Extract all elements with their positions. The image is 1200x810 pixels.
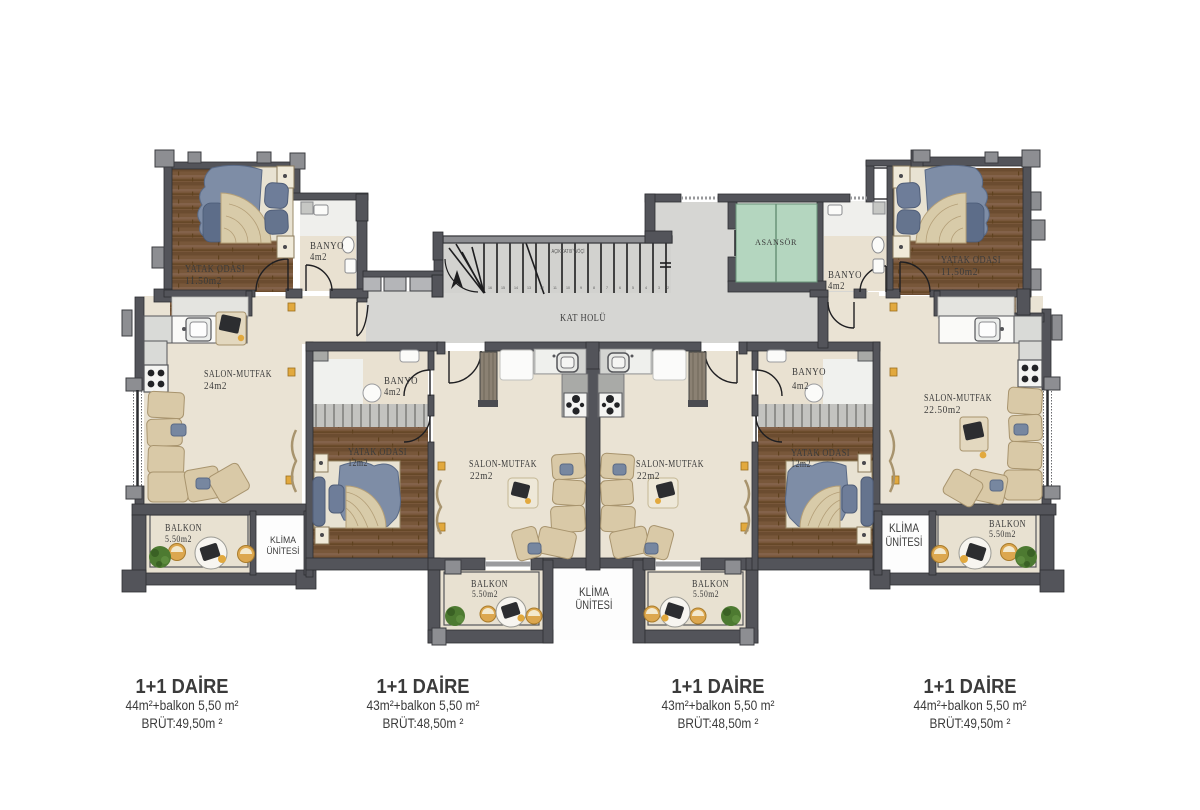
svg-text:1+1 DAİRE: 1+1 DAİRE: [377, 675, 470, 698]
svg-text:1+1 DAİRE: 1+1 DAİRE: [924, 675, 1017, 698]
svg-text:KLİMA: KLİMA: [889, 522, 919, 535]
svg-text:SALON-MUTFAK: SALON-MUTFAK: [924, 393, 992, 404]
svg-text:BANYO: BANYO: [310, 241, 344, 252]
svg-text:AÇIKÇATI9´WÖÇİ: AÇIKÇATI9´WÖÇİ: [552, 248, 585, 255]
svg-text:5.50m2: 5.50m2: [472, 590, 498, 600]
svg-text:43m²+balkon 5,50 m²: 43m²+balkon 5,50 m²: [662, 698, 775, 713]
svg-text:BALKON: BALKON: [692, 579, 729, 590]
svg-text:11.50m2: 11.50m2: [941, 267, 978, 278]
svg-text:11: 11: [553, 286, 557, 290]
svg-text:44m²+balkon 5,50 m²: 44m²+balkon 5,50 m²: [914, 698, 1027, 713]
svg-text:BRÜT:49,50m ²: BRÜT:49,50m ²: [930, 716, 1011, 731]
svg-text:BANYO: BANYO: [792, 367, 826, 378]
svg-text:4m2: 4m2: [310, 252, 327, 263]
svg-text:8: 8: [593, 286, 595, 290]
svg-text:ASANSÖR: ASANSÖR: [755, 237, 797, 247]
svg-text:12m2: 12m2: [348, 458, 368, 469]
svg-text:10: 10: [566, 286, 570, 290]
svg-text:YATAK ODASI: YATAK ODASI: [185, 264, 245, 275]
svg-text:44m²+balkon 5,50 m²: 44m²+balkon 5,50 m²: [126, 698, 239, 713]
svg-text:KLİMA: KLİMA: [270, 535, 297, 546]
svg-text:YATAK ODASI: YATAK ODASI: [791, 448, 850, 459]
svg-text:5: 5: [632, 286, 634, 290]
svg-text:22.50m2: 22.50m2: [924, 405, 961, 416]
svg-text:BRÜT:48,50m ²: BRÜT:48,50m ²: [678, 716, 759, 731]
svg-text:KLİMA: KLİMA: [579, 586, 609, 599]
svg-text:11.50m2: 11.50m2: [185, 276, 222, 287]
svg-text:YATAK ODASI: YATAK ODASI: [348, 447, 407, 458]
svg-text:BALKON: BALKON: [165, 523, 202, 534]
svg-text:BRÜT:48,50m ²: BRÜT:48,50m ²: [383, 716, 464, 731]
svg-text:4m2: 4m2: [384, 387, 401, 398]
svg-text:KAT HOLÜ: KAT HOLÜ: [560, 312, 606, 324]
svg-text:SALON-MUTFAK: SALON-MUTFAK: [636, 459, 704, 470]
svg-text:4: 4: [645, 286, 647, 290]
svg-text:YATAK ODASI: YATAK ODASI: [941, 255, 1001, 266]
svg-text:2: 2: [667, 286, 669, 290]
svg-text:4m2: 4m2: [792, 381, 809, 392]
svg-text:12: 12: [540, 286, 544, 290]
svg-text:SALON-MUTFAK: SALON-MUTFAK: [469, 459, 537, 470]
svg-text:BALKON: BALKON: [471, 579, 508, 590]
svg-text:22m2: 22m2: [637, 471, 660, 482]
svg-text:9: 9: [580, 286, 582, 290]
svg-text:BANYO: BANYO: [828, 270, 862, 281]
svg-text:5.50m2: 5.50m2: [989, 530, 1016, 540]
svg-text:3: 3: [658, 286, 660, 290]
svg-text:6: 6: [619, 286, 621, 290]
svg-text:5.50m2: 5.50m2: [693, 590, 719, 600]
svg-text:BALKON: BALKON: [989, 519, 1026, 530]
svg-text:ÜNİTESİ: ÜNİTESİ: [267, 546, 300, 557]
svg-text:15: 15: [501, 286, 505, 290]
svg-text:ÜNİTESİ: ÜNİTESİ: [576, 599, 613, 612]
svg-text:43m²+balkon 5,50 m²: 43m²+balkon 5,50 m²: [367, 698, 480, 713]
svg-text:5.50m2: 5.50m2: [165, 535, 192, 545]
svg-text:16: 16: [488, 286, 492, 290]
svg-text:12m2: 12m2: [791, 459, 811, 470]
svg-text:4m2: 4m2: [828, 281, 845, 292]
svg-text:7: 7: [606, 286, 608, 290]
svg-text:ÜNİTESİ: ÜNİTESİ: [886, 536, 923, 549]
svg-text:SALON-MUTFAK: SALON-MUTFAK: [204, 369, 272, 380]
svg-text:14: 14: [514, 286, 518, 290]
svg-text:22m2: 22m2: [470, 471, 493, 482]
svg-text:1+1 DAİRE: 1+1 DAİRE: [672, 675, 765, 698]
svg-text:1+1 DAİRE: 1+1 DAİRE: [136, 675, 229, 698]
svg-text:BANYO: BANYO: [384, 376, 418, 387]
svg-text:13: 13: [527, 286, 531, 290]
svg-text:BRÜT:49,50m ²: BRÜT:49,50m ²: [142, 716, 223, 731]
svg-text:24m2: 24m2: [204, 381, 227, 392]
